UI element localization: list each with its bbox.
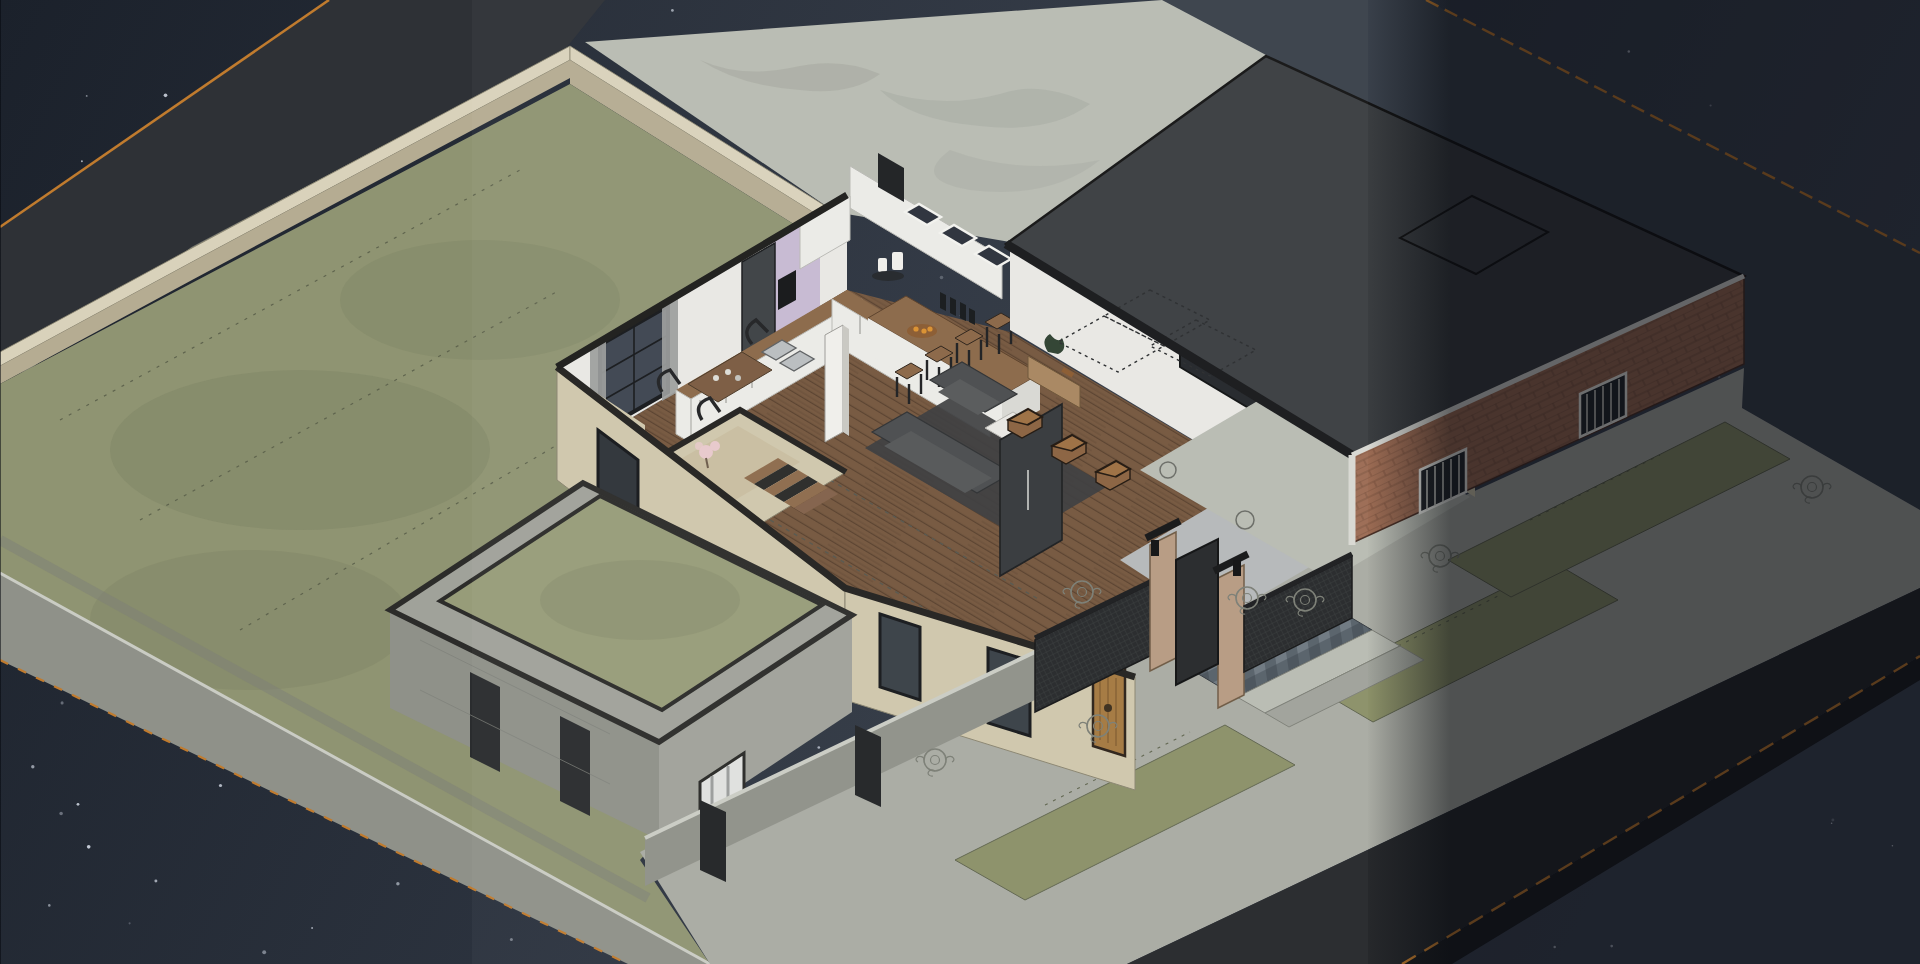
left-shadow-band (0, 0, 472, 964)
isometric-world-viewport[interactable] (0, 0, 1920, 964)
right-shadow-band (1450, 0, 1920, 964)
center-light-band (472, 0, 1368, 964)
scene-stage (0, 0, 1920, 964)
right-shadow-band-fade (1368, 0, 1450, 964)
lighting-overlays (0, 0, 1920, 964)
